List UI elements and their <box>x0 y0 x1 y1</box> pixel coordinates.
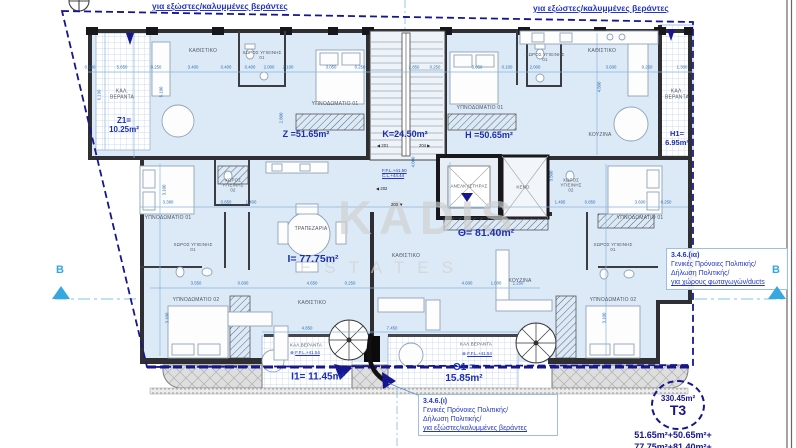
window-lines <box>264 334 520 337</box>
lift-levels: F.F.L.+41.50 C.L.+44.44 <box>382 168 407 178</box>
note-verandas-ref: 3.4.6.(ι) <box>423 397 553 406</box>
top-left-note: για εξώστες/καλυμμένες βεράντες <box>152 1 288 11</box>
level-marker-icon: ⊕ <box>290 350 294 355</box>
floor-plan-sheet: KADIS ESTATES για εξώστες/καλυμμένες βερ… <box>0 0 796 448</box>
note-ducts-ref: 3.4.6.(ια) <box>671 251 783 260</box>
note-verandas-line2: Δήλωση Πολιτικής/ <box>423 416 482 423</box>
area-label-theta: Θ= 81.40m² <box>458 227 514 239</box>
section-arrow-icon <box>52 286 70 299</box>
veranda-level-right: ⊕ F.F.L.+41.54 <box>462 351 492 357</box>
note-ducts-line3: για χώρους φωταγωγών/ducts <box>671 279 765 286</box>
note-ducts: 3.4.6.(ια) Γενικές Πρόνοιες Πολιτικής/ Δ… <box>666 248 788 290</box>
area-label-h1: H1= 6.95m² <box>665 129 689 147</box>
top-right-note: για εξώστες/καλυμμένες βεράντες <box>533 3 669 13</box>
area-label-i: I= 77.75m² <box>287 253 338 265</box>
area-label-z: Z =51.65m² <box>283 129 330 139</box>
door-tag-201: ◀ 201 <box>377 143 388 148</box>
section-arrow-icon <box>768 286 786 299</box>
area-theta1-value: 15.85m² <box>445 373 482 384</box>
grid-bubble-icon <box>69 0 89 11</box>
area-label-k: K=24.50m² <box>382 129 427 139</box>
veranda-ffl-right: F.F.L.+41.54 <box>467 351 492 356</box>
unit-type: T3 <box>670 403 686 417</box>
note-verandas: 3.4.6.(ι) Γενικές Πρόνοιες Πολιτικής/ Δή… <box>418 394 558 436</box>
area-h1-value: 6.95m² <box>665 138 689 147</box>
note-ducts-line2: Δήλωση Πολιτικής/ <box>671 270 730 277</box>
door-tag-203: 203 ▼ <box>391 202 403 207</box>
staircase <box>370 31 445 160</box>
note-verandas-line3: για εξώστες/καλυμμένες βεράντες <box>423 425 527 432</box>
area-z1-name: Z1= <box>117 116 131 125</box>
section-marker-b-left: B <box>56 264 64 276</box>
note-verandas-line1: Γενικές Πρόνοιες Πολιτικής/ <box>423 407 508 414</box>
area-theta1-name: Θ1 = <box>453 362 475 373</box>
area-label-h: H =50.65m² <box>465 130 513 140</box>
area-sum-line1: 51.65m²+50.65m²+ <box>634 430 712 440</box>
area-label-theta1: Θ1 = 15.85m² <box>445 362 482 384</box>
veranda-level-left: ⊕ F.F.L.+41.54 <box>290 350 320 356</box>
area-h1-name: H1= <box>670 129 684 138</box>
sheet-border <box>787 0 792 448</box>
unit-total-badge: 330.45m² T3 <box>651 380 705 430</box>
area-label-z1: Z1= 10.25m² <box>109 116 139 134</box>
veranda-ffl-left: F.F.L.+41.54 <box>295 350 320 355</box>
section-marker-b-right: B <box>772 264 780 276</box>
area-z1-value: 10.25m² <box>109 125 139 134</box>
area-sum-line2: 77.75m²+81.40m²+ <box>634 442 712 448</box>
area-label-i1: I1= 11.45m² <box>291 372 345 383</box>
lift-cl: C.L.+44.44 <box>382 173 404 178</box>
level-marker-icon: ⊕ <box>462 351 466 356</box>
note-ducts-line1: Γενικές Πρόνοιες Πολιτικής/ <box>671 261 756 268</box>
door-tag-202: ◀ 202 <box>376 186 387 191</box>
door-tag-204: 204 ▶ <box>419 143 430 148</box>
